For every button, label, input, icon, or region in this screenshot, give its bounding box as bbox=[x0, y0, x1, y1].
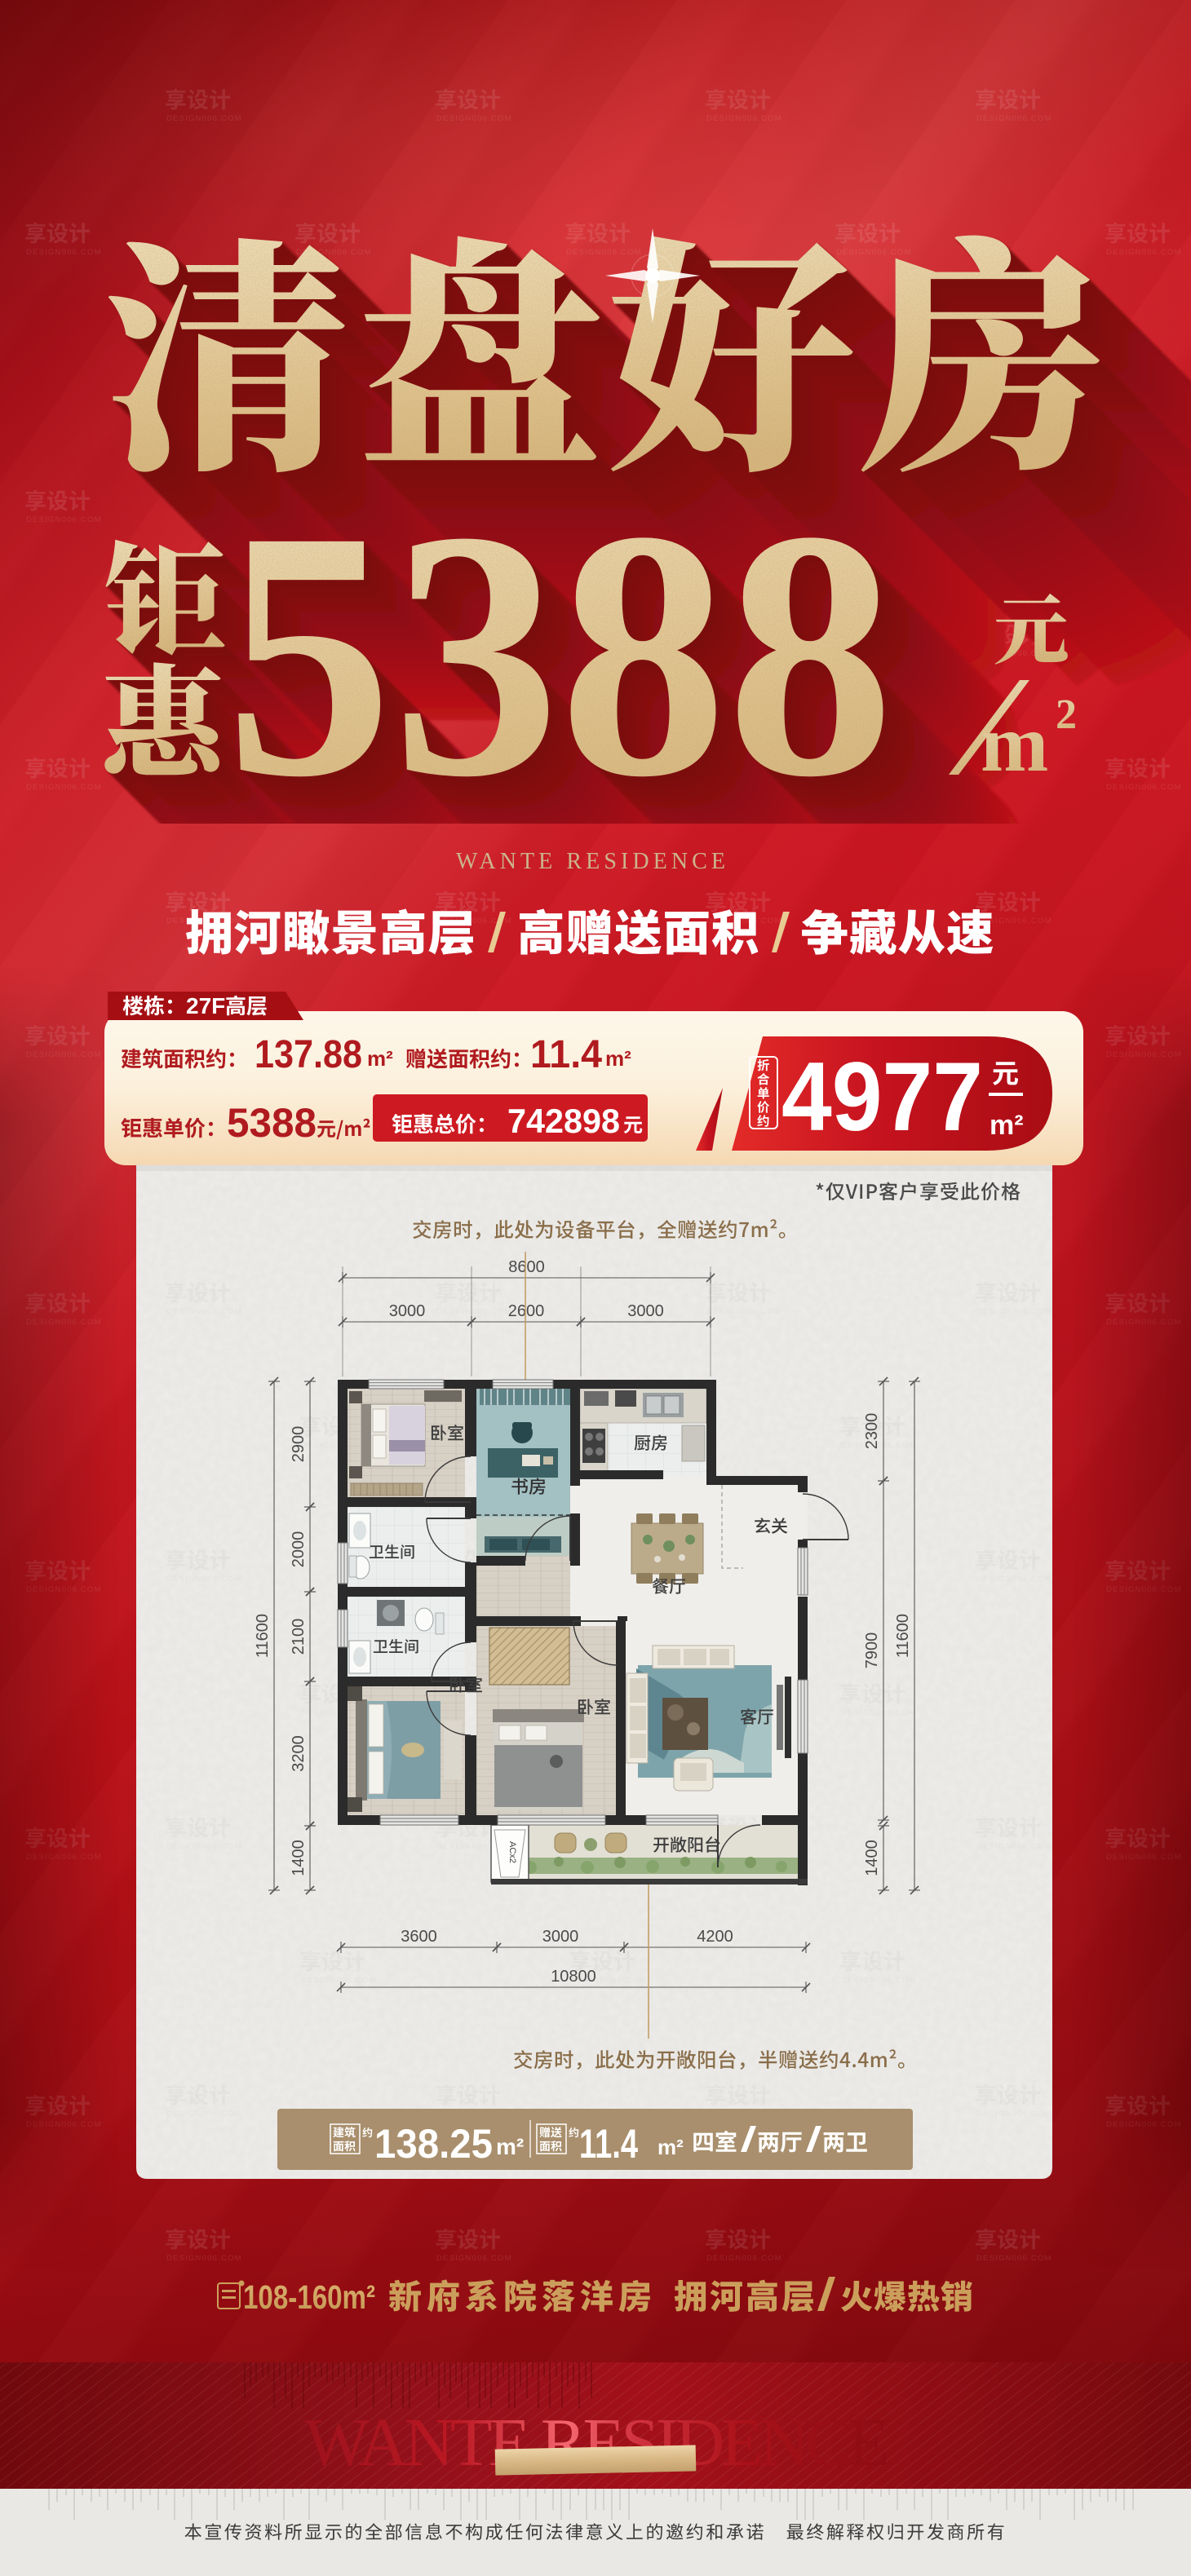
svg-text:2900: 2900 bbox=[290, 1426, 308, 1463]
svg-text:DESIGN006.COM: DESIGN006.COM bbox=[166, 1842, 242, 1851]
svg-text:742898: 742898 bbox=[507, 1102, 620, 1140]
svg-text:3000: 3000 bbox=[389, 1302, 426, 1320]
svg-text:DESIGN006.COM: DESIGN006.COM bbox=[841, 1708, 917, 1717]
svg-text:8600: 8600 bbox=[508, 1258, 545, 1276]
svg-text:2600: 2600 bbox=[508, 1302, 545, 1320]
svg-text:137.88: 137.88 bbox=[255, 1033, 362, 1076]
svg-text:10800: 10800 bbox=[551, 1968, 596, 1986]
svg-text:DESIGN006.COM: DESIGN006.COM bbox=[301, 1976, 377, 1985]
svg-text:DESIGN006.COM: DESIGN006.COM bbox=[976, 1842, 1052, 1851]
svg-text:DESIGN006.COM: DESIGN006.COM bbox=[976, 2110, 1052, 2119]
svg-text:m: m bbox=[981, 698, 1048, 789]
svg-text:2100: 2100 bbox=[290, 1619, 308, 1655]
svg-text:11.4: 11.4 bbox=[530, 1033, 602, 1076]
svg-text:DESIGN006.COM: DESIGN006.COM bbox=[976, 1575, 1052, 1584]
svg-text:5388: 5388 bbox=[227, 1100, 317, 1146]
svg-text:4200: 4200 bbox=[697, 1928, 733, 1946]
svg-text:DESIGN006.COM: DESIGN006.COM bbox=[436, 1307, 512, 1316]
svg-text:138.25: 138.25 bbox=[374, 2121, 493, 2167]
svg-text:11600: 11600 bbox=[894, 1614, 912, 1658]
svg-text:WANTE RESIDENCE: WANTE RESIDENCE bbox=[456, 849, 725, 874]
svg-text:27F: 27F bbox=[186, 993, 225, 1018]
svg-text:DESIGN006.COM: DESIGN006.COM bbox=[166, 2110, 242, 2119]
svg-text:m²: m² bbox=[605, 1046, 631, 1071]
svg-text:m²: m² bbox=[657, 2135, 684, 2159]
svg-text:3000: 3000 bbox=[627, 1302, 664, 1320]
svg-text:m²: m² bbox=[367, 1046, 393, 1071]
svg-text:DESIGN006.COM: DESIGN006.COM bbox=[166, 1307, 242, 1316]
svg-text:5388: 5388 bbox=[225, 457, 894, 824]
svg-text:DESIGN006.COM: DESIGN006.COM bbox=[976, 1307, 1052, 1316]
svg-text:1400: 1400 bbox=[863, 1840, 881, 1876]
svg-text:DESIGN006.COM: DESIGN006.COM bbox=[706, 1307, 782, 1316]
svg-text:11.4: 11.4 bbox=[579, 2121, 638, 2167]
svg-text:3600: 3600 bbox=[401, 1928, 437, 1946]
svg-text:2: 2 bbox=[1056, 691, 1077, 738]
svg-text:4977: 4977 bbox=[781, 1042, 983, 1151]
svg-text:2000: 2000 bbox=[290, 1531, 308, 1568]
svg-text:3000: 3000 bbox=[542, 1928, 579, 1946]
svg-text:108-160m²: 108-160m² bbox=[243, 2278, 375, 2316]
svg-text:ACx2: ACx2 bbox=[507, 1841, 517, 1863]
svg-text:m²: m² bbox=[990, 1110, 1024, 1141]
svg-text:1400: 1400 bbox=[290, 1840, 308, 1876]
svg-text:7900: 7900 bbox=[863, 1633, 881, 1669]
svg-text:m²: m² bbox=[496, 2134, 524, 2159]
svg-text:2300: 2300 bbox=[863, 1413, 881, 1450]
svg-text:DESIGN006.COM: DESIGN006.COM bbox=[166, 1575, 242, 1584]
svg-text:3200: 3200 bbox=[290, 1735, 308, 1772]
svg-text:11600: 11600 bbox=[254, 1614, 272, 1658]
svg-text:DESIGN006.COM: DESIGN006.COM bbox=[841, 1976, 917, 1985]
